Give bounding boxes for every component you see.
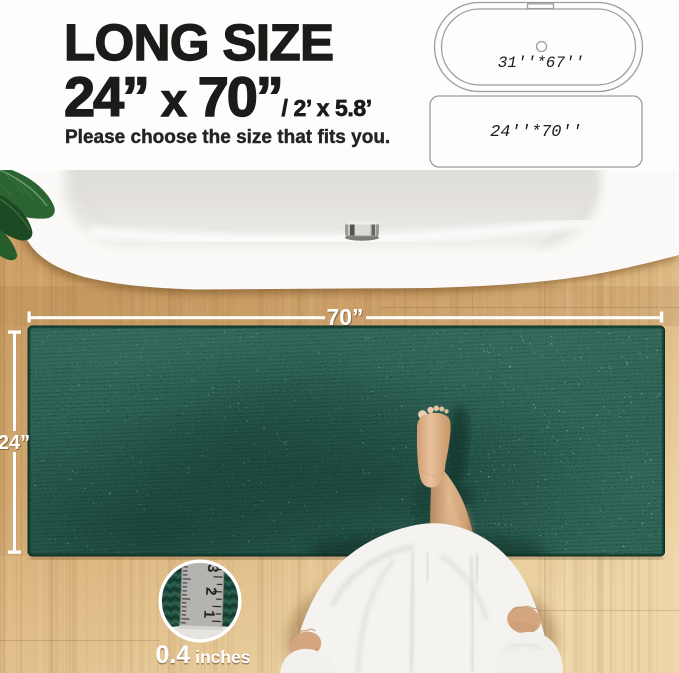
- svg-text:70”: 70”: [326, 304, 363, 330]
- svg-text:31''*67'': 31''*67'': [498, 54, 584, 72]
- svg-text:2: 2: [202, 587, 219, 596]
- svg-text:24”: 24”: [0, 432, 30, 454]
- svg-text:1: 1: [200, 610, 217, 619]
- svg-text:24''*70'': 24''*70'': [490, 123, 582, 142]
